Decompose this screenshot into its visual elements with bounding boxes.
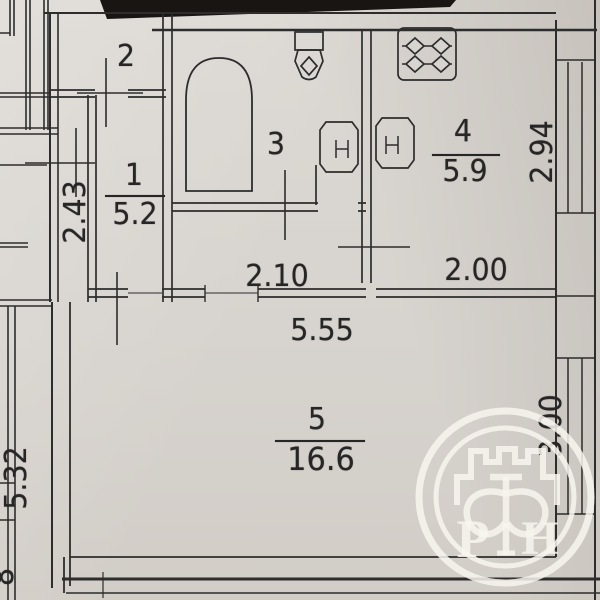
watermark-letter-r: Р <box>457 509 490 569</box>
watermark-stamp: Р Н <box>0 0 600 600</box>
watermark-letter-n: Н <box>521 512 558 565</box>
floorplan-photo: 2 1 5.2 3 4 5.9 5 16.6 2.43 2.10 2.00 2.… <box>0 0 600 600</box>
